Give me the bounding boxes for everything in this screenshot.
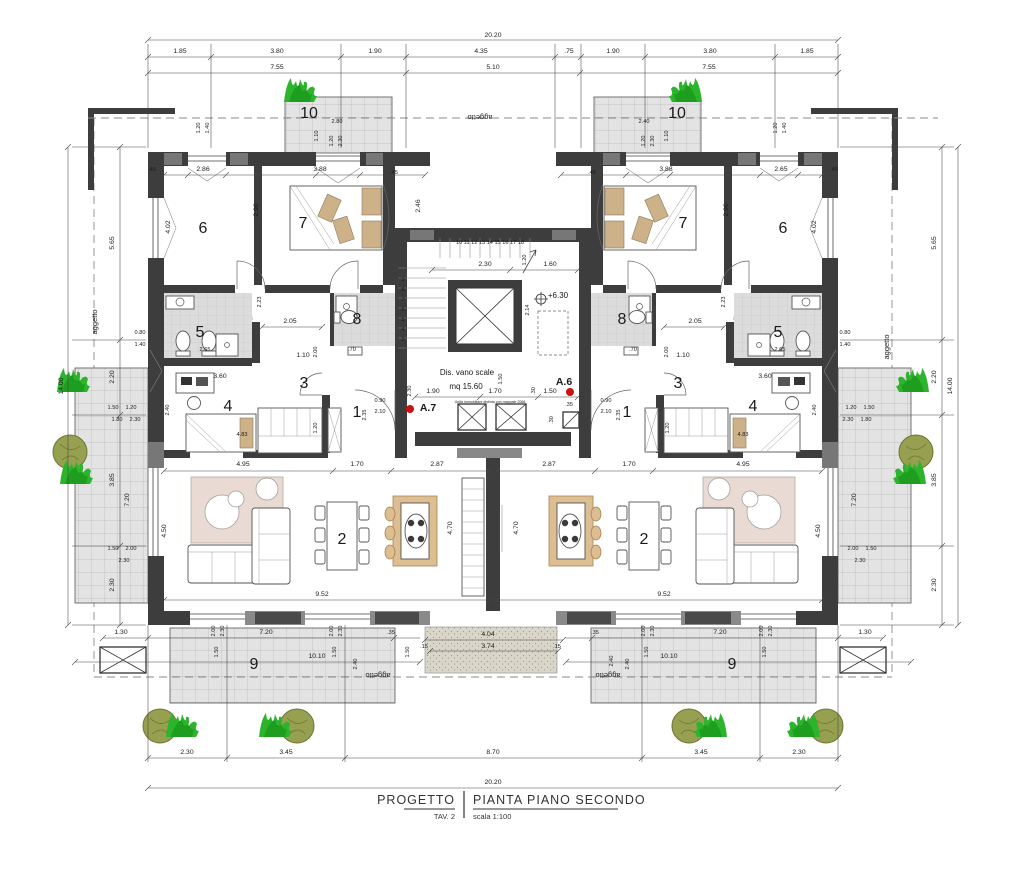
dim-label: 7.20 <box>851 493 858 506</box>
red-annotation: aggetto <box>467 113 492 122</box>
red-annotation: aggetto <box>882 334 891 359</box>
dim-label: 2.30 <box>180 749 193 756</box>
dim-label: 2.40 <box>625 659 631 670</box>
dim-label: 1.20 <box>522 255 528 266</box>
dim-label: .35 <box>387 630 395 636</box>
dim-label: 2.10 <box>601 409 612 415</box>
sheet-number: TAV. 2 <box>434 812 455 821</box>
dim-label: 14.00 <box>947 377 954 394</box>
dim-label: 1.20 <box>313 423 319 434</box>
marker-label: A.6 <box>556 376 573 388</box>
dim-label: 5 <box>401 317 404 323</box>
dim-label: 2.30 <box>931 578 938 591</box>
dim-label: 2.87 <box>542 461 555 468</box>
dim-label: 1.30 <box>114 629 127 636</box>
dim-label: 2.65 <box>775 347 786 353</box>
dim-label: 7.20 <box>713 629 726 636</box>
dim-label: 8.70 <box>486 749 499 756</box>
note: Dis. vano scale <box>440 368 495 377</box>
elevation-marker-icon <box>534 292 548 306</box>
red-annotation: aggetto <box>90 309 99 334</box>
dim-label: .70 <box>348 347 356 353</box>
dim-label: 1.70 <box>488 388 501 395</box>
room-number: 9 <box>728 656 737 673</box>
dim-label: 4.70 <box>513 521 520 534</box>
dim-label: 2.23 <box>257 297 263 308</box>
dim-label: 1.20 <box>846 405 857 411</box>
dim-label: 1.90 <box>606 48 619 55</box>
dim-label: 2.30 <box>130 417 141 423</box>
dim-label: 2.90 <box>253 203 260 216</box>
dim-label: 2.30 <box>338 626 344 637</box>
drawing-scale: scala 1:100 <box>473 812 511 821</box>
dim-label: .15 <box>420 644 428 650</box>
dim-label: 2.87 <box>430 461 443 468</box>
dim-label: 2.00 <box>641 626 647 637</box>
dim-label: 2.40 <box>812 405 818 416</box>
dim-label: 1.20 <box>196 123 202 134</box>
dim-label: 1.90 <box>368 48 381 55</box>
dim-label: 2.30 <box>220 626 226 637</box>
dim-label: 3.74 <box>481 643 494 650</box>
dim-label: 3.80 <box>270 48 283 55</box>
dim-label: 1.30 <box>858 629 871 636</box>
dim-label: 10.10 <box>660 653 677 660</box>
dim-label: 7.55 <box>702 64 715 71</box>
room-number: 2 <box>640 531 649 548</box>
dim-label: 2.30 <box>650 626 656 637</box>
dim-label: 2.35 <box>362 410 368 421</box>
dim-label: 1.50 <box>866 546 877 552</box>
dim-label: 2.30 <box>119 558 130 564</box>
dim-label: 3.60 <box>758 373 771 380</box>
room-number: 1 <box>353 404 362 421</box>
dim-label: .30 <box>549 416 555 424</box>
title-block: PROGETTO PIANTA PIANO SECONDO TAV. 2 sca… <box>377 791 646 821</box>
red-annotation: aggetto <box>595 671 620 680</box>
dim-label: .35 <box>565 402 573 408</box>
dim-label: 2.00 <box>759 626 765 637</box>
dim-label: 2.00 <box>313 347 319 358</box>
dim-label: 9 <box>401 277 404 283</box>
dim-label: 2.30 <box>650 136 656 147</box>
dim-label: 1.50 <box>644 647 650 658</box>
dim-label: 2.90 <box>723 203 730 216</box>
dim-label: 0.90 <box>601 398 612 404</box>
dim-label: 2.40 <box>639 119 650 125</box>
dim-label: 1.50 <box>762 647 768 658</box>
dim-label: 1.80 <box>112 417 123 423</box>
dim-label: 2.65 <box>200 347 211 353</box>
dim-label: 1.85 <box>173 48 186 55</box>
dim-label: 9.52 <box>315 591 328 598</box>
dim-label: 2.46 <box>415 199 422 212</box>
dim-label: 2.00 <box>848 546 859 552</box>
dim-label: 1.10 <box>314 131 320 142</box>
dim-label: 1.40 <box>135 342 146 348</box>
drawing-title: PIANTA PIANO SECONDO <box>473 793 646 807</box>
dim-label: 2.20 <box>931 370 938 383</box>
dim-label: 1.50 <box>498 374 504 385</box>
dim-label: 4.95 <box>236 461 249 468</box>
dim-label: 1.50 <box>108 546 119 552</box>
room-number: 6 <box>779 220 788 237</box>
dim-label: 10 11 12 13 14 15 16 17 18 <box>456 240 524 246</box>
dim-label: 2.40 <box>165 405 171 416</box>
dim-label: 4.02 <box>165 220 172 233</box>
dim-label: 3 <box>401 337 404 343</box>
room-number: 9 <box>250 656 259 673</box>
dim-label: 2.00 <box>664 347 670 358</box>
room-number: 1 <box>623 404 632 421</box>
dim-label: 2.30 <box>478 261 491 268</box>
dim-label: 2.40 <box>609 656 615 667</box>
dim-label: 1.20 <box>665 423 671 434</box>
dim-label: 1.80 <box>861 417 872 423</box>
dim-label: 1.70 <box>350 461 363 468</box>
room-number: 2 <box>338 531 347 548</box>
room-number: 8 <box>353 311 362 328</box>
dim-label: 2.30 <box>855 558 866 564</box>
dim-label: 3.80 <box>703 48 716 55</box>
dim-label: 9.52 <box>657 591 670 598</box>
dim-label: 5.10 <box>486 64 499 71</box>
dim-label: 10.10 <box>308 653 325 660</box>
dim-label: .45 <box>390 170 398 176</box>
room-number: 4 <box>749 398 758 415</box>
dim-label: 4.35 <box>474 48 487 55</box>
dim-label: 7.20 <box>124 493 131 506</box>
dim-label: 4 <box>401 327 404 333</box>
project-label: PROGETTO <box>377 793 455 807</box>
dim-label: .45 <box>588 170 596 176</box>
dim-label: 2.30 <box>109 578 116 591</box>
dim-label: .15 <box>553 644 561 650</box>
room-number: 4 <box>224 398 233 415</box>
dim-label: 1.10 <box>676 352 689 359</box>
red-annotation: aggetto <box>365 671 390 680</box>
dim-label: .75 <box>564 48 574 55</box>
dim-label: 3.45 <box>694 749 707 756</box>
dim-label: 2.35 <box>616 410 622 421</box>
dim-label: 3.88 <box>659 166 672 173</box>
dim-label: 5.65 <box>109 236 116 249</box>
dim-label: .45 <box>830 167 838 173</box>
dim-label: 7.55 <box>270 64 283 71</box>
floor-plan-drawing: 20.201.853.801.904.35.751.903.801.857.55… <box>0 0 1024 883</box>
room-number: 10 <box>300 105 318 122</box>
dim-label: 1.40 <box>840 342 851 348</box>
dim-label: 5.65 <box>931 236 938 249</box>
dim-label: 1.10 <box>296 352 309 359</box>
dim-label: 4.50 <box>815 524 822 537</box>
dim-label: 1.50 <box>214 647 220 658</box>
architectural-drawing-page: 20.201.853.801.904.35.751.903.801.857.55… <box>0 0 1024 883</box>
room-number: 10 <box>668 105 686 122</box>
dim-label: 2.10 <box>375 409 386 415</box>
dim-label: 4.83 <box>237 432 248 438</box>
dim-label: 8 <box>401 287 404 293</box>
dim-label: 1.60 <box>543 261 556 268</box>
dim-label: .70 <box>629 347 637 353</box>
dim-label: 3.88 <box>313 166 326 173</box>
dim-label: 1.50 <box>405 647 411 658</box>
elevator-shaft <box>448 280 522 352</box>
room-number: 5 <box>196 324 205 341</box>
dim-label: 1.20 <box>773 123 779 134</box>
dim-label: 4.95 <box>736 461 749 468</box>
dim-label: 2.00 <box>126 546 137 552</box>
note: mq 15.60 <box>449 382 483 391</box>
tiny-note: Unità immobiliare distinta con mappale 2… <box>455 400 526 404</box>
dim-label: 3.85 <box>931 473 938 486</box>
dim-label: 6 <box>401 307 404 313</box>
dim-label: 1.50 <box>543 388 556 395</box>
dim-label: 0.80 <box>840 330 851 336</box>
dim-label: 2.30 <box>338 136 344 147</box>
dim-label: 0.80 <box>135 330 146 336</box>
dim-label: 4.50 <box>161 524 168 537</box>
dim-label: 1.20 <box>329 136 335 147</box>
dim-label: 2.30 <box>843 417 854 423</box>
dim-label: 2.80 <box>332 119 343 125</box>
dim-label: 2.00 <box>211 626 217 637</box>
dim-label: 7.20 <box>259 629 272 636</box>
dim-label: 1.70 <box>622 461 635 468</box>
dim-label: 1.50 <box>108 405 119 411</box>
dim-label: 1.10 <box>664 131 670 142</box>
dim-label: .35 <box>591 630 599 636</box>
dim-label: 2.00 <box>329 626 335 637</box>
a7-marker-dot <box>406 405 414 413</box>
dim-label: 2.65 <box>774 166 787 173</box>
a6-marker-dot <box>566 388 574 396</box>
room-number: 7 <box>299 215 308 232</box>
dim-label: 4.70 <box>447 521 454 534</box>
dim-label: 4.04 <box>481 631 494 638</box>
dim-label: 2.30 <box>768 626 774 637</box>
dim-label: 4.02 <box>811 220 818 233</box>
room-number: 7 <box>679 215 688 232</box>
dim-label: 1.90 <box>426 388 439 395</box>
dim-label: 1.50 <box>332 647 338 658</box>
dim-label: 2.05 <box>688 318 701 325</box>
room-number: 3 <box>674 375 683 392</box>
dim-label: .45 <box>148 167 156 173</box>
dim-label: 1.50 <box>864 405 875 411</box>
dim-label: 4.83 <box>738 432 749 438</box>
dim-label: 2.86 <box>196 166 209 173</box>
dim-label: 3.85 <box>109 473 116 486</box>
dim-label: 2.23 <box>721 297 727 308</box>
room-number: 3 <box>300 375 309 392</box>
dim-label: 1.85 <box>800 48 813 55</box>
dim-label: 2.40 <box>353 659 359 670</box>
dim-label: 1.40 <box>205 123 211 134</box>
dim-label: 0.90 <box>375 398 386 404</box>
dim-label: .30 <box>531 387 537 395</box>
dim-label: 20.20 <box>484 32 501 39</box>
dim-label: 2.30 <box>407 386 413 397</box>
dim-label: 1.20 <box>641 136 647 147</box>
dim-label: 1.20 <box>126 405 137 411</box>
dim-label: 3.45 <box>279 749 292 756</box>
dim-label: 2.14 <box>525 305 531 316</box>
dim-label: 14.00 <box>58 377 65 394</box>
dim-label: 2.30 <box>792 749 805 756</box>
dim-label: 2.05 <box>283 318 296 325</box>
room-number: 5 <box>774 324 783 341</box>
dim-label: 20.20 <box>484 779 501 786</box>
room-number: 8 <box>618 311 627 328</box>
marker-label: A.7 <box>420 402 437 414</box>
room-number: 6 <box>199 220 208 237</box>
note: +6.30 <box>548 291 569 300</box>
dim-label: 3.60 <box>213 373 226 380</box>
dim-label: 2.20 <box>109 370 116 383</box>
dim-label: 7 <box>401 297 404 303</box>
stair-core <box>88 118 938 677</box>
dim-label: 1.40 <box>782 123 788 134</box>
